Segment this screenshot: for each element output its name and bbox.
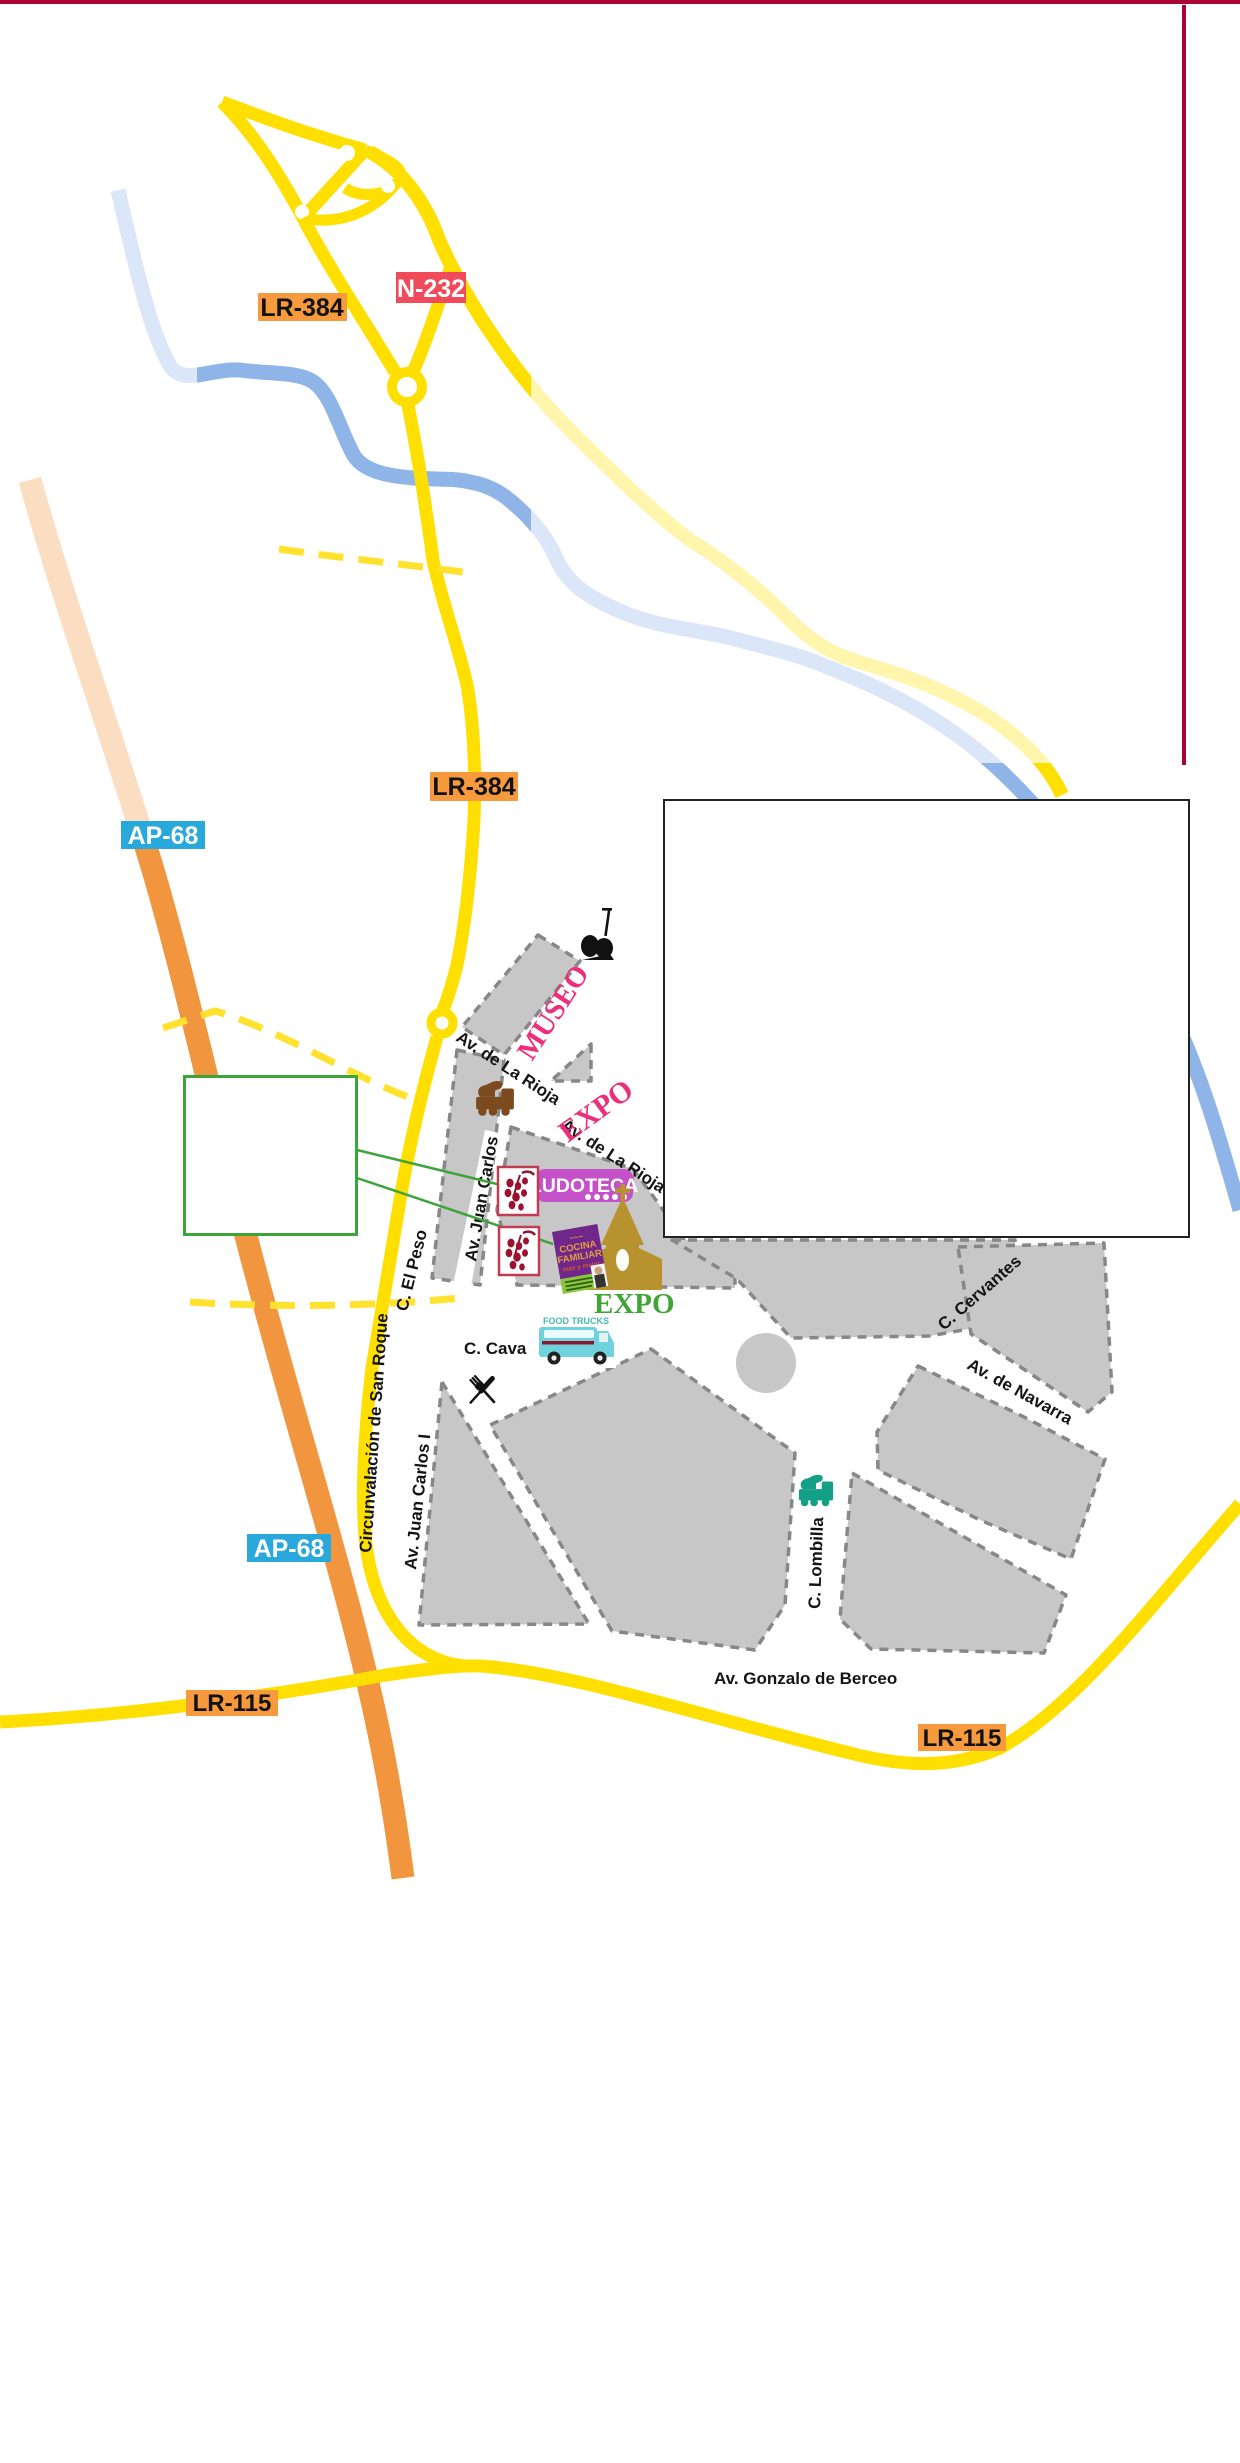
svg-text:Av. Gonzalo de Berceo: Av. Gonzalo de Berceo — [714, 1669, 897, 1688]
svg-text:C. Lombilla: C. Lombilla — [805, 1516, 827, 1609]
svg-text:N-232: N-232 — [397, 275, 465, 303]
svg-text:LR-384: LR-384 — [432, 773, 515, 801]
svg-text:AP-68: AP-68 — [254, 1535, 325, 1563]
svg-text:LR-384: LR-384 — [260, 294, 343, 322]
svg-text:C. Cava: C. Cava — [464, 1339, 527, 1358]
